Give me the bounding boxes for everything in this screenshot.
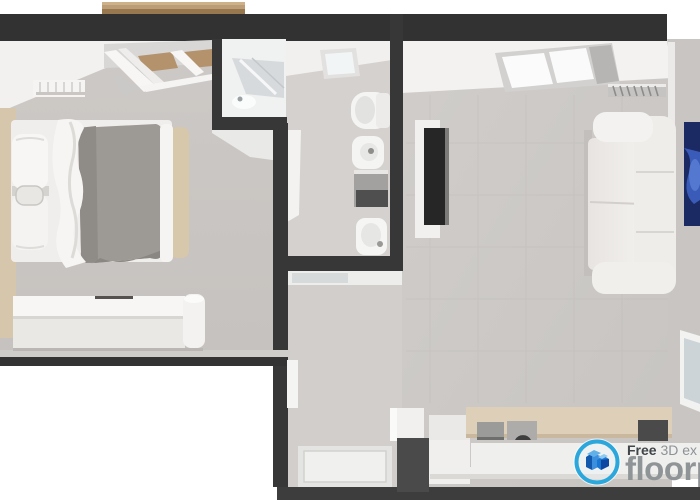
svg-text:floorpl: floorpl <box>625 450 700 487</box>
